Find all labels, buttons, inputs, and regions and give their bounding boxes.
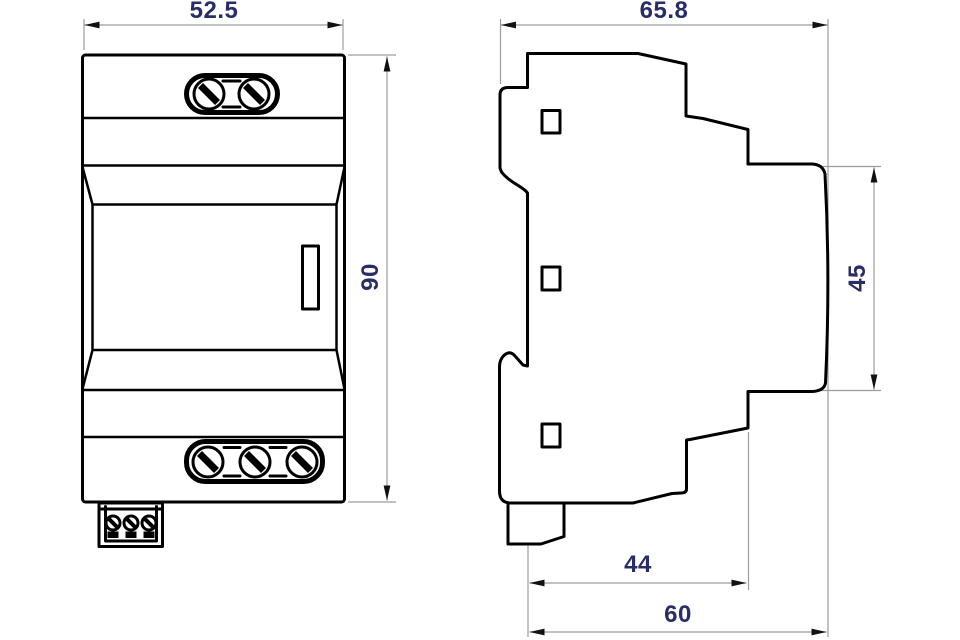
dim-label-face-height: 45	[844, 264, 872, 292]
arrowhead	[732, 580, 747, 587]
dim-label-front-width: 52.5	[190, 0, 239, 25]
drawing-linework	[0, 0, 960, 640]
dim-label-total-depth: 60	[664, 601, 692, 629]
arrowhead	[530, 629, 545, 636]
arrowhead	[328, 22, 343, 29]
front-view	[83, 55, 345, 547]
connector-wire-port	[144, 532, 155, 539]
top-terminal-block	[187, 76, 278, 113]
dim-label-body-depth: 44	[624, 551, 652, 579]
dim-label-side-width: 65.8	[640, 0, 689, 25]
bottom-terminal-block	[187, 442, 323, 482]
dim-label-front-height: 90	[357, 263, 385, 291]
arrowhead	[530, 580, 545, 587]
clip-window	[542, 111, 560, 134]
side-connector-block	[508, 503, 564, 544]
side-view	[500, 54, 828, 545]
arrowhead	[812, 629, 827, 636]
arrowhead	[384, 57, 391, 72]
clip-window	[542, 267, 560, 290]
arrowhead	[871, 375, 878, 390]
arrowhead	[384, 486, 391, 501]
arrowhead	[813, 22, 828, 29]
connector-wire-port	[126, 532, 137, 539]
connector-wire-port	[108, 532, 119, 539]
arrowhead	[871, 168, 878, 183]
marking-window-slot	[303, 246, 319, 309]
plug-connector-block	[99, 503, 163, 547]
clip-window	[542, 424, 560, 447]
technical-drawing-canvas: 52.5 90 65.8 45 44 60	[0, 0, 960, 640]
arrowhead	[85, 22, 100, 29]
arrowhead	[501, 22, 516, 29]
